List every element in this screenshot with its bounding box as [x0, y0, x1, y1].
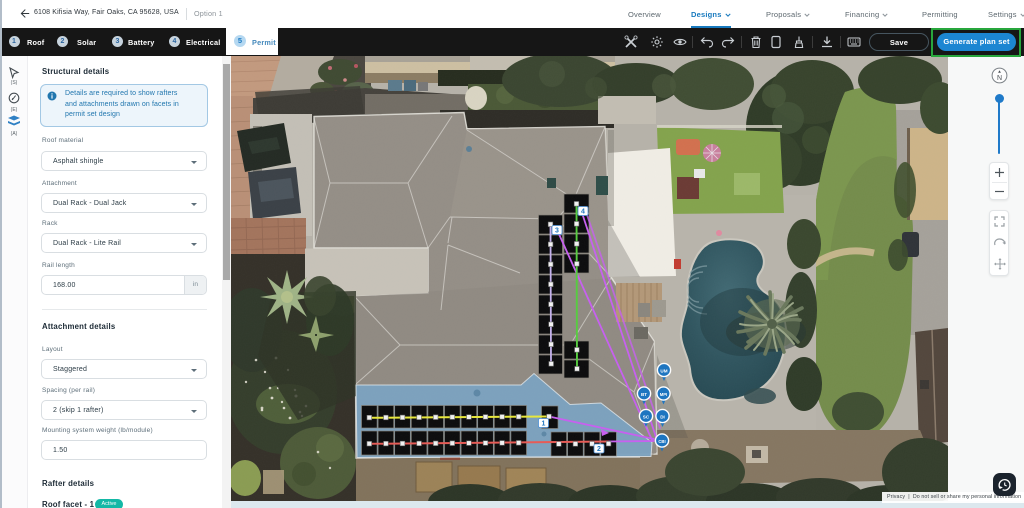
- svg-text:BT: BT: [641, 392, 647, 397]
- svg-text:CBI: CBI: [658, 439, 665, 444]
- svg-text:MPI: MPI: [660, 392, 667, 397]
- svg-text:1: 1: [542, 420, 546, 427]
- svg-text:UM: UM: [660, 368, 667, 373]
- svg-text:3: 3: [555, 227, 559, 234]
- svg-text:4: 4: [581, 208, 585, 215]
- svg-text:DI: DI: [660, 414, 665, 419]
- svg-text:N: N: [997, 75, 1002, 82]
- svg-text:2: 2: [597, 446, 601, 453]
- svg-text:SC: SC: [643, 414, 650, 419]
